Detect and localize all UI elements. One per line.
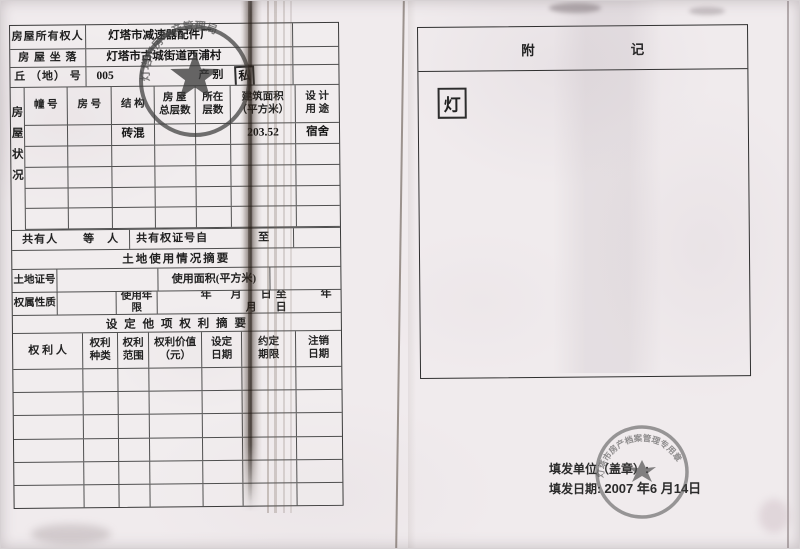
plot-number: 005 bbox=[96, 70, 113, 83]
appendix-title-right: 记 bbox=[631, 38, 645, 58]
address-label: 房 屋 坐 落 bbox=[10, 49, 86, 67]
address-row-empty-cell bbox=[293, 47, 338, 64]
co-owner-label: 共有人 bbox=[22, 234, 58, 247]
bottom-left-smudge bbox=[31, 524, 111, 544]
tenure-label: 权属性质 bbox=[13, 293, 58, 315]
rights-empty-rows bbox=[13, 367, 342, 508]
stamp-star-icon bbox=[170, 51, 219, 98]
land-cert-label: 土地证号 bbox=[12, 270, 57, 292]
owner-row-empty-cell bbox=[293, 23, 338, 46]
plot-label: 丘 （地） 号 bbox=[10, 67, 86, 87]
co-cert-cell: 共有权证号自 至 bbox=[130, 228, 294, 249]
housing-empty-rows bbox=[25, 144, 340, 230]
appendix-box: 附 记 灯 bbox=[417, 24, 751, 379]
co-cert-to-label: 至 bbox=[258, 232, 270, 245]
tenure-value-cell bbox=[58, 292, 117, 315]
page-fold-line bbox=[395, 0, 405, 549]
use-value: 宿舍 bbox=[296, 123, 339, 143]
land-area-value-cell bbox=[270, 267, 340, 290]
co-owner-empty-cell bbox=[294, 228, 340, 247]
bottom-right-smudge bbox=[759, 499, 789, 533]
stamp-emblem-icon bbox=[628, 460, 656, 482]
deng-stamp-box: 灯 bbox=[438, 88, 467, 119]
page-edge-line bbox=[787, 1, 789, 549]
land-cert-row: 土地证号 使用面积(平方米) bbox=[12, 267, 340, 293]
use-years-label: 使用年限 bbox=[117, 292, 158, 314]
page-fold-shadow bbox=[408, 1, 416, 549]
scanned-property-certificate: 房屋所有权人 灯塔市减速器配件厂 房 屋 坐 落 灯塔市古城街道西浦村 丘 （地… bbox=[0, 0, 800, 549]
official-round-stamp-bottom: 灯塔市房产档案管理专用章 bbox=[590, 420, 694, 524]
date-range: 年 月 日至 年 月 日 bbox=[158, 290, 341, 314]
housing-side-label: 房 屋 状 况 bbox=[11, 88, 26, 230]
top-smudge-2 bbox=[689, 7, 725, 15]
co-owner-cell: 共有人 等 人 bbox=[12, 230, 130, 250]
co-cert-label: 共有权证号自 bbox=[136, 232, 208, 245]
land-cert-value-cell bbox=[57, 269, 158, 292]
appendix-header: 附 记 bbox=[418, 25, 747, 72]
co-owner-suffix: 等 人 bbox=[83, 233, 119, 246]
appendix-title-left: 附 bbox=[521, 38, 535, 58]
top-smudge-1 bbox=[549, 3, 601, 13]
plot-row-empty-cell bbox=[293, 65, 338, 84]
official-round-stamp-top: 灯塔市房地产管理局 bbox=[137, 17, 253, 147]
rights-header-row: 权 利 人 权利种类 权利范围 权利价值（元） 设定日期 约定期限 注销日期 bbox=[13, 331, 341, 370]
land-area-label: 使用面积(平方米) bbox=[158, 268, 270, 291]
tenure-row: 权属性质 使用年限 年 月 日至 年 月 日 bbox=[13, 290, 341, 316]
owner-label: 房屋所有权人 bbox=[10, 25, 86, 49]
